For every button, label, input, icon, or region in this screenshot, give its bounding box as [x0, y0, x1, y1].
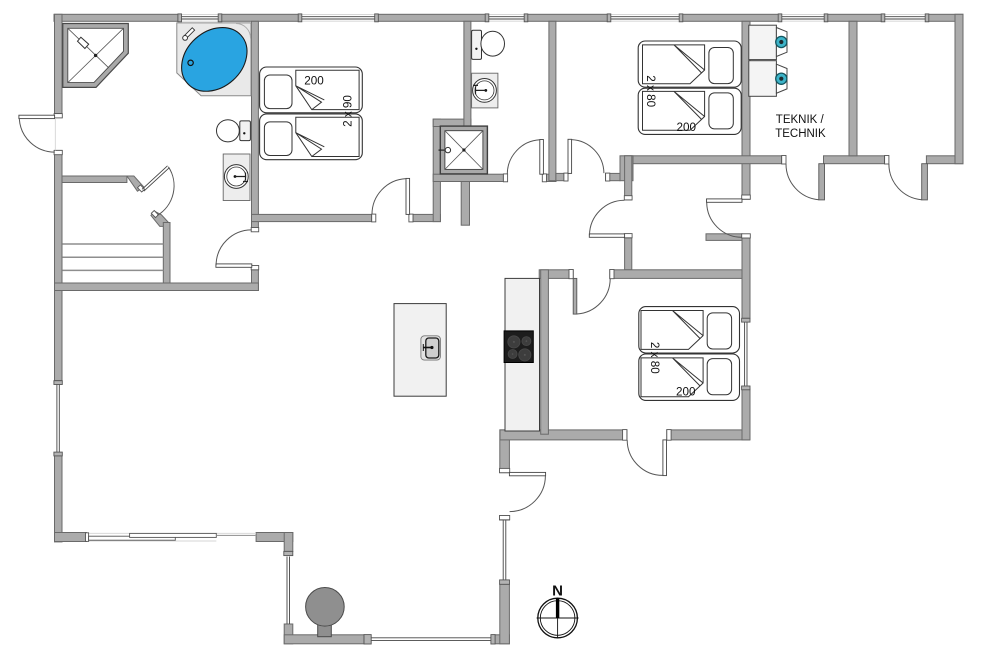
svg-text:2 x 80: 2 x 80 — [644, 75, 657, 107]
svg-text:200: 200 — [304, 74, 324, 87]
svg-text:N: N — [552, 582, 563, 599]
svg-text:TECHNIK: TECHNIK — [775, 128, 826, 140]
svg-text:2 x 80: 2 x 80 — [648, 342, 661, 374]
svg-text:200: 200 — [676, 386, 696, 399]
svg-text:2 x 90: 2 x 90 — [342, 95, 355, 127]
svg-text:TEKNIK /: TEKNIK / — [776, 114, 825, 126]
svg-text:200: 200 — [676, 121, 696, 134]
